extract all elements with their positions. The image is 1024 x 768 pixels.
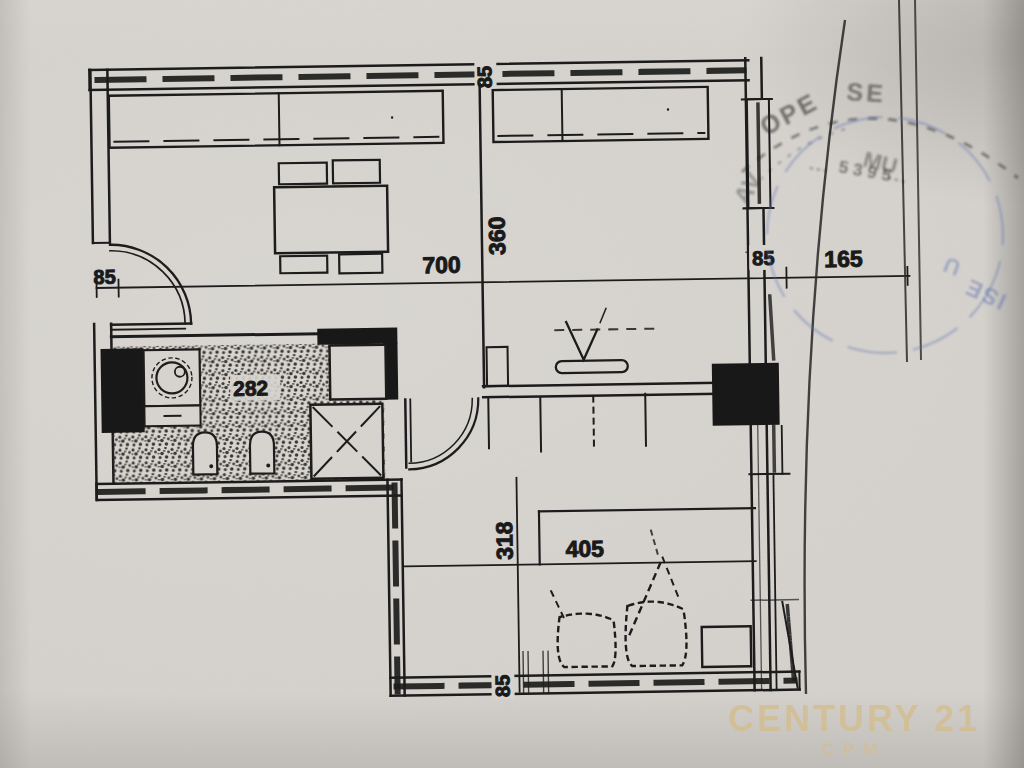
watermark-brand: CENTURY 21	[728, 701, 980, 737]
bathroom: 282	[94, 327, 401, 500]
dim-bottom-wall: 85	[491, 675, 513, 698]
stamp-text-fragment: SE	[846, 77, 887, 108]
duct-column	[100, 348, 144, 433]
scanned-floor-plan-photo: 85 85 700 360	[0, 0, 1024, 768]
century21-watermark: CENTURY 21 CPM	[728, 701, 980, 760]
dim-bathroom-width: 282	[233, 376, 268, 400]
shower-icon	[310, 404, 383, 479]
dim-bedroom-width: 405	[565, 535, 604, 562]
floorplan-svg: 85 85 700 360	[0, 0, 1024, 768]
toilet-icon	[193, 432, 218, 474]
dim-right-extension: 165	[824, 246, 863, 273]
dim-bedroom-depth: 318	[491, 521, 518, 560]
dim-living-depth: 360	[484, 216, 511, 255]
dim-living-width: 700	[422, 252, 461, 279]
structural-column	[712, 363, 780, 426]
bathroom-wall-bar	[317, 328, 397, 345]
bathroom-cabinet	[329, 345, 386, 400]
dim-top-wall: 85	[473, 66, 495, 89]
toilet-icon	[250, 431, 275, 473]
washing-machine-icon	[144, 349, 201, 426]
watermark-sub: CPM	[728, 740, 980, 760]
